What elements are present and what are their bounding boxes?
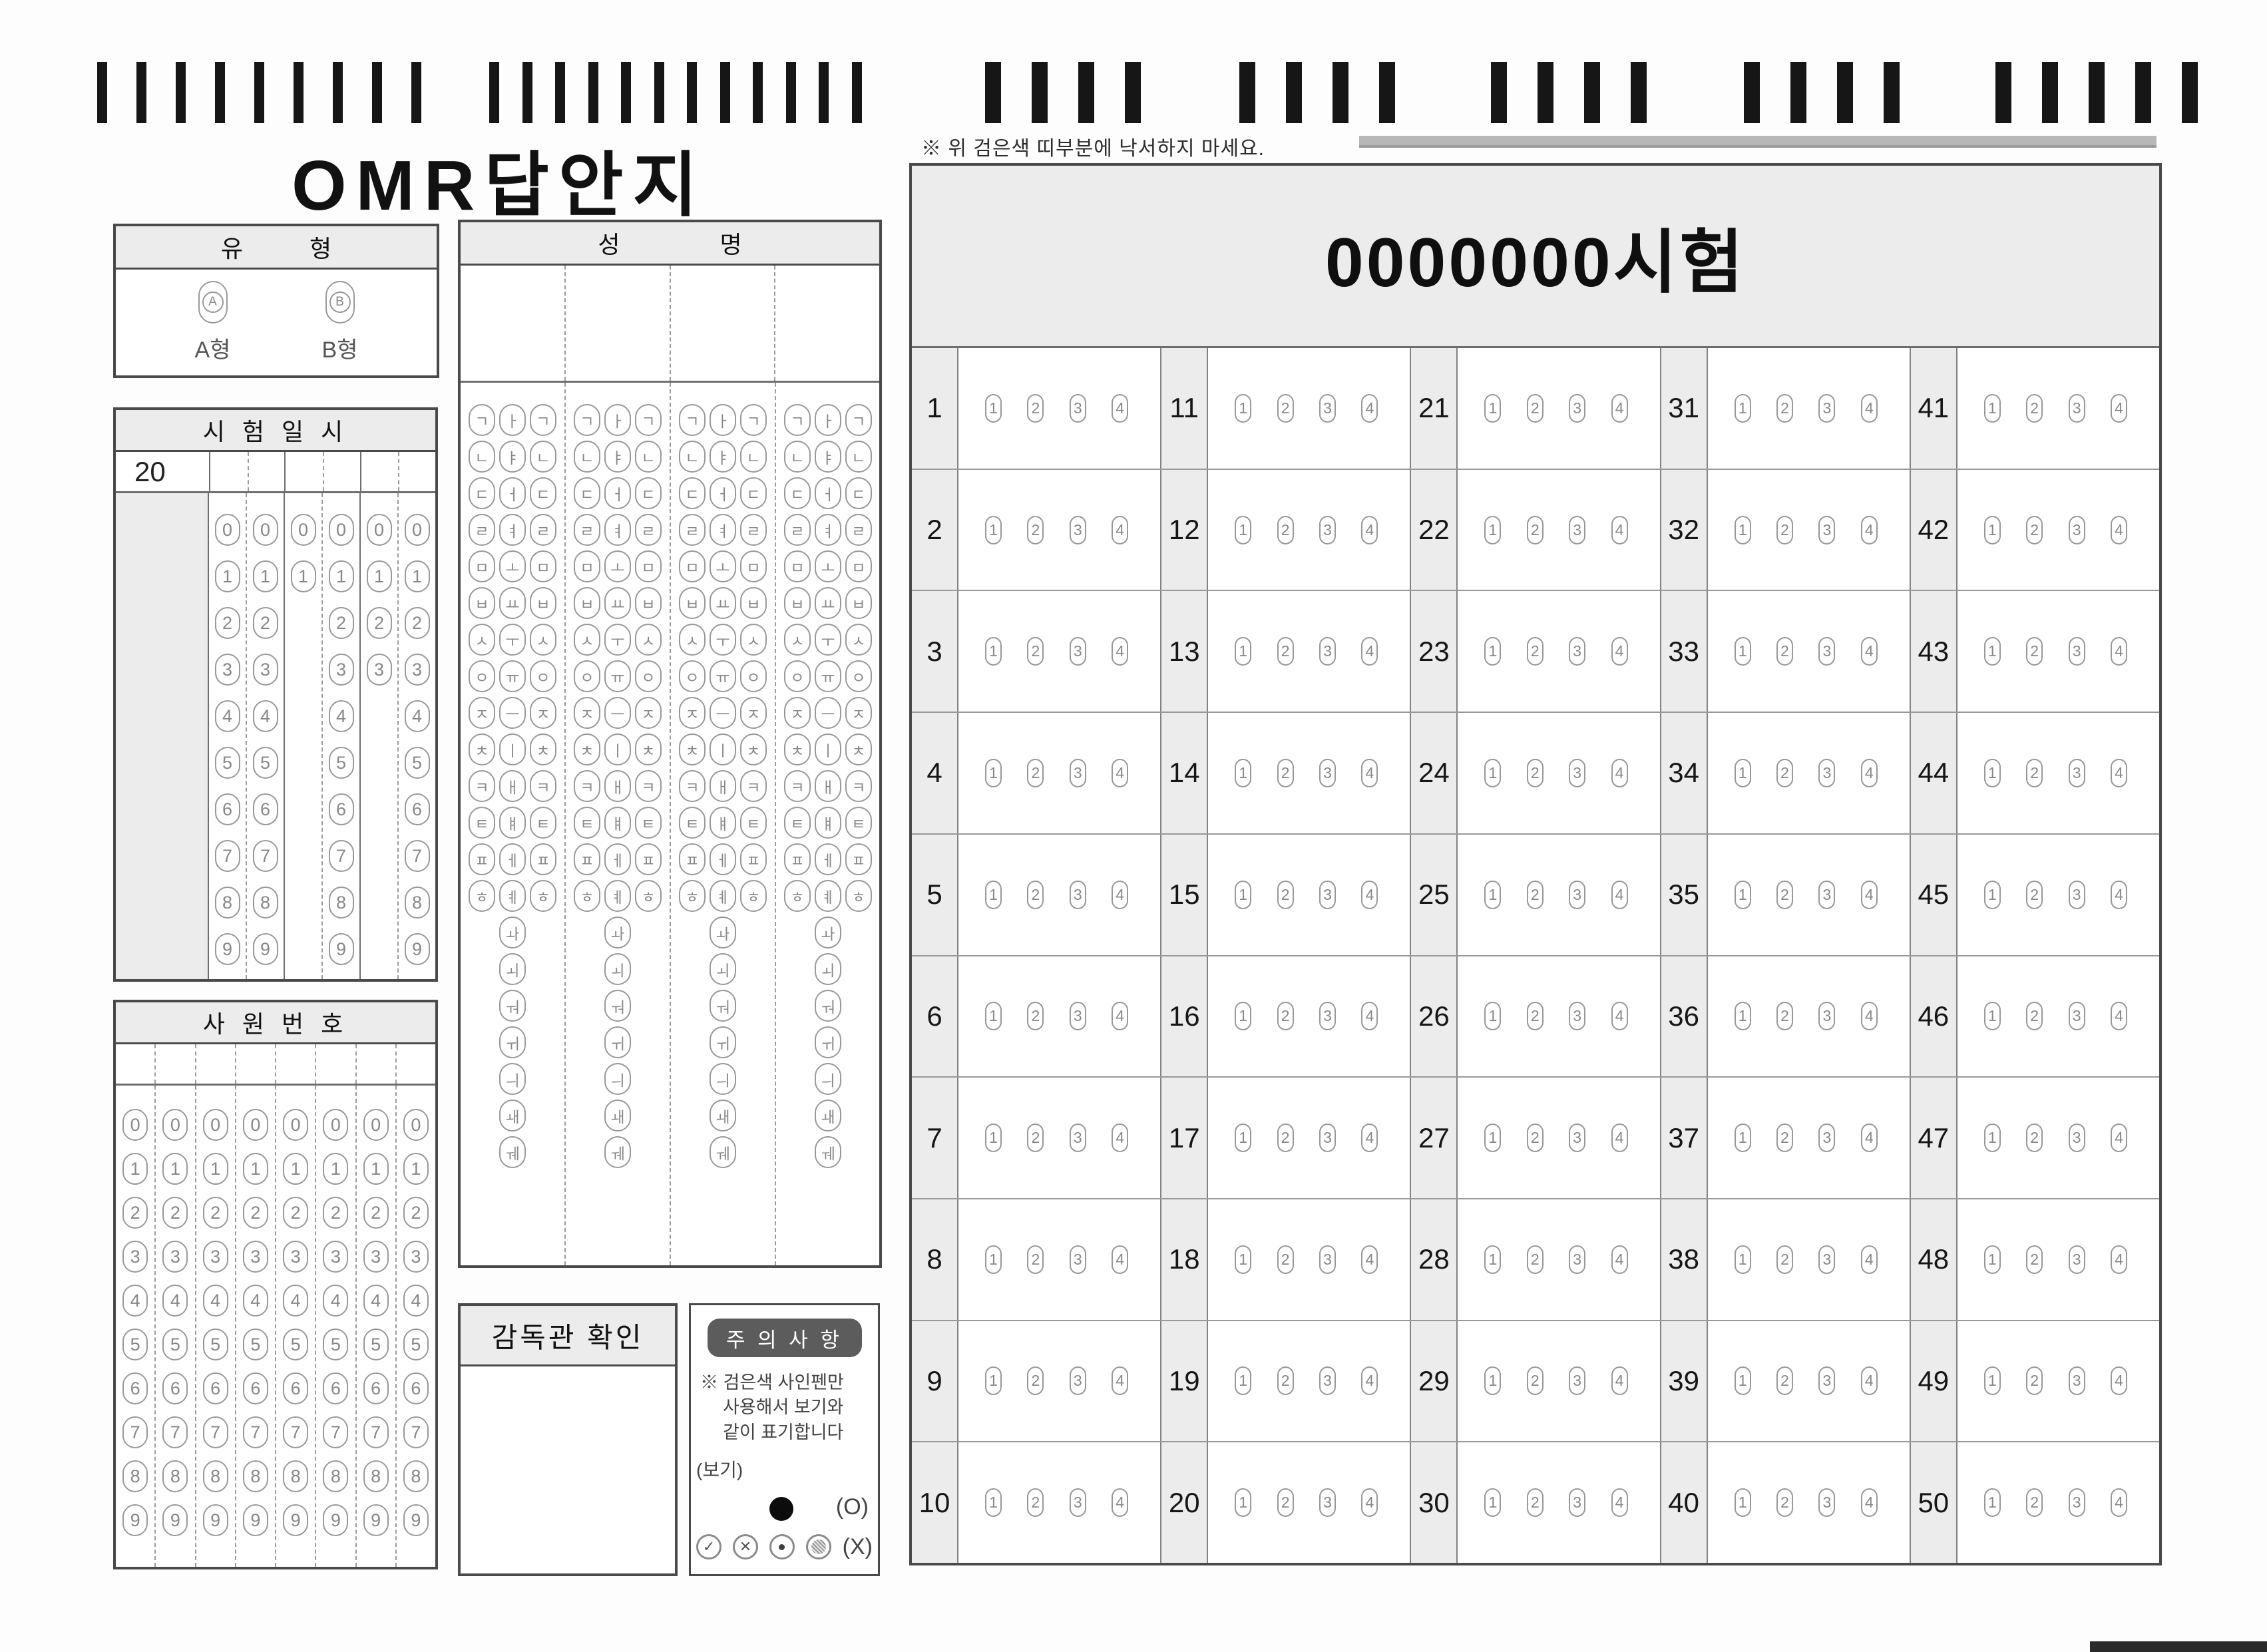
q36-choice-1[interactable]: 1	[1735, 1002, 1751, 1030]
jamo-bubble-middle-ㅚ[interactable]: ㅚ	[815, 953, 841, 985]
q21-choice-4[interactable]: 4	[1611, 394, 1628, 423]
jamo-bubble-middle-ㅘ[interactable]: ㅘ	[604, 917, 631, 948]
jamo-bubble-middle-ㅒ[interactable]: ㅒ	[710, 807, 736, 839]
jamo-bubble-last-ㅅ[interactable]: ㅅ	[635, 624, 662, 656]
q35-choice-2[interactable]: 2	[1776, 881, 1793, 909]
digit-bubble-emp-3-9[interactable]: 9	[203, 1504, 228, 1536]
jamo-bubble-first-ㅈ[interactable]: ㅈ	[679, 697, 706, 729]
q12-choice-4[interactable]: 4	[1361, 516, 1378, 544]
q3-choice-3[interactable]: 3	[1070, 637, 1086, 666]
jamo-bubble-last-ㅁ[interactable]: ㅁ	[740, 550, 767, 582]
digit-bubble-year-ones-3[interactable]: 3	[253, 654, 278, 686]
jamo-bubble-last-ㅁ[interactable]: ㅁ	[845, 550, 872, 582]
jamo-bubble-first-ㅊ[interactable]: ㅊ	[784, 733, 811, 765]
jamo-bubble-first-ㅁ[interactable]: ㅁ	[784, 550, 811, 582]
jamo-bubble-first-ㄴ[interactable]: ㄴ	[469, 441, 495, 473]
q2-choice-2[interactable]: 2	[1027, 516, 1044, 544]
q18-choice-2[interactable]: 2	[1277, 1245, 1294, 1274]
jamo-bubble-middle-ㅑ[interactable]: ㅑ	[604, 441, 631, 473]
q44-choice-3[interactable]: 3	[2069, 759, 2085, 787]
digit-bubble-day-tens-3[interactable]: 3	[367, 654, 392, 686]
jamo-bubble-first-ㅇ[interactable]: ㅇ	[574, 660, 600, 692]
jamo-bubble-middle-ㅡ[interactable]: ㅡ	[604, 697, 631, 729]
digit-bubble-day-ones-2[interactable]: 2	[405, 607, 430, 639]
digit-bubble-emp-8-7[interactable]: 7	[403, 1416, 429, 1448]
jamo-bubble-last-ㅎ[interactable]: ㅎ	[635, 880, 662, 912]
q22-choice-1[interactable]: 1	[1484, 516, 1501, 544]
q31-choice-3[interactable]: 3	[1818, 394, 1835, 423]
q29-choice-4[interactable]: 4	[1611, 1366, 1628, 1395]
jamo-bubble-last-ㅊ[interactable]: ㅊ	[530, 733, 556, 765]
jamo-bubble-last-ㅂ[interactable]: ㅂ	[635, 587, 662, 619]
digit-bubble-month-ones-3[interactable]: 3	[329, 654, 354, 686]
q48-choice-3[interactable]: 3	[2069, 1245, 2085, 1274]
jamo-bubble-first-ㅂ[interactable]: ㅂ	[469, 587, 495, 619]
jamo-bubble-last-ㅅ[interactable]: ㅅ	[740, 624, 767, 656]
jamo-bubble-middle-ㅞ[interactable]: ㅞ	[604, 1136, 631, 1168]
jamo-bubble-last-ㅊ[interactable]: ㅊ	[740, 733, 767, 765]
q19-choice-3[interactable]: 3	[1319, 1366, 1336, 1395]
q11-choice-2[interactable]: 2	[1277, 394, 1294, 423]
q49-choice-1[interactable]: 1	[1984, 1366, 2001, 1395]
digit-bubble-emp-8-1[interactable]: 1	[403, 1153, 429, 1185]
jamo-bubble-middle-ㅚ[interactable]: ㅚ	[499, 953, 526, 985]
q5-choice-2[interactable]: 2	[1027, 881, 1044, 909]
jamo-bubble-middle-ㅗ[interactable]: ㅗ	[710, 550, 736, 582]
jamo-bubble-middle-ㅡ[interactable]: ㅡ	[815, 697, 841, 729]
q5-choice-1[interactable]: 1	[985, 881, 1002, 909]
q38-choice-4[interactable]: 4	[1861, 1245, 1878, 1274]
q50-choice-2[interactable]: 2	[2026, 1488, 2043, 1517]
jamo-bubble-middle-ㅒ[interactable]: ㅒ	[499, 807, 526, 839]
digit-bubble-emp-5-8[interactable]: 8	[283, 1460, 308, 1492]
digit-bubble-year-tens-9[interactable]: 9	[215, 933, 240, 965]
q42-choice-2[interactable]: 2	[2026, 516, 2043, 544]
q9-choice-3[interactable]: 3	[1070, 1366, 1086, 1395]
digit-bubble-year-tens-3[interactable]: 3	[215, 654, 240, 686]
q20-choice-4[interactable]: 4	[1361, 1488, 1378, 1517]
digit-bubble-year-ones-8[interactable]: 8	[253, 887, 278, 919]
q10-choice-4[interactable]: 4	[1112, 1488, 1128, 1517]
digit-bubble-emp-2-1[interactable]: 1	[162, 1153, 188, 1185]
jamo-bubble-first-ㅎ[interactable]: ㅎ	[469, 880, 495, 912]
jamo-bubble-middle-ㅠ[interactable]: ㅠ	[815, 660, 841, 692]
q38-choice-2[interactable]: 2	[1776, 1245, 1793, 1274]
jamo-bubble-middle-ㅠ[interactable]: ㅠ	[499, 660, 526, 692]
q4-choice-2[interactable]: 2	[1027, 759, 1044, 787]
q18-choice-1[interactable]: 1	[1235, 1245, 1251, 1274]
q1-choice-3[interactable]: 3	[1070, 394, 1086, 423]
jamo-bubble-middle-ㅟ[interactable]: ㅟ	[815, 1026, 841, 1058]
jamo-bubble-first-ㅋ[interactable]: ㅋ	[574, 770, 600, 802]
q8-choice-4[interactable]: 4	[1112, 1245, 1128, 1274]
digit-bubble-emp-7-4[interactable]: 4	[363, 1285, 389, 1317]
jamo-bubble-last-ㅋ[interactable]: ㅋ	[845, 770, 872, 802]
digit-bubble-year-tens-0[interactable]: 0	[215, 514, 240, 546]
jamo-bubble-middle-ㅐ[interactable]: ㅐ	[815, 770, 841, 802]
digit-bubble-year-ones-4[interactable]: 4	[253, 700, 278, 732]
digit-bubble-emp-2-4[interactable]: 4	[162, 1285, 188, 1317]
digit-bubble-emp-1-3[interactable]: 3	[122, 1241, 148, 1273]
q24-choice-2[interactable]: 2	[1527, 759, 1544, 787]
jamo-bubble-middle-ㅏ[interactable]: ㅏ	[499, 404, 526, 436]
jamo-bubble-middle-ㅗ[interactable]: ㅗ	[604, 550, 631, 582]
q22-choice-2[interactable]: 2	[1527, 516, 1544, 544]
digit-bubble-emp-3-8[interactable]: 8	[203, 1460, 228, 1492]
q6-choice-4[interactable]: 4	[1112, 1002, 1128, 1030]
employee-no-write-cell[interactable]	[275, 1044, 315, 1084]
q34-choice-4[interactable]: 4	[1861, 759, 1878, 787]
digit-bubble-emp-4-4[interactable]: 4	[243, 1285, 268, 1317]
digit-bubble-emp-3-4[interactable]: 4	[203, 1285, 228, 1317]
employee-no-write-cell[interactable]	[195, 1044, 235, 1084]
q30-choice-2[interactable]: 2	[1527, 1488, 1544, 1517]
digit-bubble-emp-1-7[interactable]: 7	[122, 1416, 148, 1448]
jamo-bubble-middle-ㅒ[interactable]: ㅒ	[815, 807, 841, 839]
q8-choice-1[interactable]: 1	[985, 1245, 1002, 1274]
digit-bubble-emp-1-4[interactable]: 4	[122, 1285, 148, 1317]
jamo-bubble-middle-ㅕ[interactable]: ㅕ	[815, 514, 841, 546]
q30-choice-4[interactable]: 4	[1611, 1488, 1628, 1517]
digit-bubble-emp-2-9[interactable]: 9	[162, 1504, 188, 1536]
digit-bubble-day-tens-2[interactable]: 2	[367, 607, 392, 639]
q4-choice-1[interactable]: 1	[985, 759, 1002, 787]
q45-choice-4[interactable]: 4	[2111, 881, 2127, 909]
digit-bubble-emp-8-0[interactable]: 0	[403, 1109, 429, 1141]
jamo-bubble-middle-ㅞ[interactable]: ㅞ	[710, 1136, 736, 1168]
jamo-bubble-first-ㄱ[interactable]: ㄱ	[679, 404, 706, 436]
digit-bubble-year-ones-2[interactable]: 2	[253, 607, 278, 639]
q35-choice-1[interactable]: 1	[1735, 881, 1751, 909]
digit-bubble-emp-7-1[interactable]: 1	[363, 1153, 389, 1185]
jamo-bubble-last-ㅈ[interactable]: ㅈ	[845, 697, 872, 729]
q26-choice-2[interactable]: 2	[1527, 1002, 1544, 1030]
q25-choice-2[interactable]: 2	[1527, 881, 1544, 909]
digit-bubble-emp-1-6[interactable]: 6	[122, 1372, 148, 1404]
jamo-bubble-middle-ㅛ[interactable]: ㅛ	[815, 587, 841, 619]
q18-choice-4[interactable]: 4	[1361, 1245, 1378, 1274]
q13-choice-1[interactable]: 1	[1235, 637, 1251, 666]
digit-bubble-emp-2-7[interactable]: 7	[162, 1416, 188, 1448]
digit-bubble-emp-1-2[interactable]: 2	[122, 1197, 148, 1229]
jamo-bubble-first-ㅁ[interactable]: ㅁ	[679, 550, 706, 582]
jamo-bubble-first-ㅎ[interactable]: ㅎ	[574, 880, 600, 912]
q50-choice-4[interactable]: 4	[2111, 1488, 2127, 1517]
jamo-bubble-last-ㄷ[interactable]: ㄷ	[635, 477, 662, 509]
jamo-bubble-middle-ㅖ[interactable]: ㅖ	[815, 880, 841, 912]
q41-choice-2[interactable]: 2	[2026, 394, 2043, 423]
digit-bubble-month-ones-0[interactable]: 0	[329, 514, 354, 546]
digit-bubble-emp-1-5[interactable]: 5	[122, 1329, 148, 1360]
digit-bubble-emp-8-4[interactable]: 4	[403, 1285, 429, 1317]
jamo-bubble-last-ㄱ[interactable]: ㄱ	[530, 404, 556, 436]
jamo-bubble-last-ㄴ[interactable]: ㄴ	[740, 441, 767, 473]
digit-bubble-emp-5-1[interactable]: 1	[283, 1153, 308, 1185]
employee-no-write-cell[interactable]	[355, 1044, 395, 1084]
digit-bubble-emp-6-0[interactable]: 0	[323, 1109, 348, 1141]
jamo-bubble-last-ㅁ[interactable]: ㅁ	[635, 550, 662, 582]
jamo-bubble-middle-ㅠ[interactable]: ㅠ	[604, 660, 631, 692]
digit-bubble-emp-5-3[interactable]: 3	[283, 1241, 308, 1273]
q11-choice-1[interactable]: 1	[1235, 394, 1251, 423]
digit-bubble-emp-3-2[interactable]: 2	[203, 1197, 228, 1229]
digit-bubble-emp-7-3[interactable]: 3	[363, 1241, 389, 1273]
jamo-bubble-first-ㄹ[interactable]: ㄹ	[469, 514, 495, 546]
jamo-bubble-middle-ㅏ[interactable]: ㅏ	[815, 404, 841, 436]
digit-bubble-emp-2-8[interactable]: 8	[162, 1460, 188, 1492]
q2-choice-1[interactable]: 1	[985, 516, 1002, 544]
digit-bubble-emp-1-9[interactable]: 9	[122, 1504, 148, 1536]
digit-bubble-emp-3-7[interactable]: 7	[203, 1416, 228, 1448]
q35-choice-4[interactable]: 4	[1861, 881, 1878, 909]
jamo-bubble-last-ㅁ[interactable]: ㅁ	[530, 550, 556, 582]
q15-choice-1[interactable]: 1	[1235, 881, 1251, 909]
jamo-bubble-last-ㅅ[interactable]: ㅅ	[845, 624, 872, 656]
digit-bubble-emp-7-9[interactable]: 9	[363, 1504, 389, 1536]
digit-bubble-emp-5-9[interactable]: 9	[283, 1504, 308, 1536]
q39-choice-1[interactable]: 1	[1735, 1366, 1751, 1395]
q49-choice-3[interactable]: 3	[2069, 1366, 2085, 1395]
q31-choice-1[interactable]: 1	[1735, 394, 1751, 423]
jamo-bubble-first-ㅊ[interactable]: ㅊ	[469, 733, 495, 765]
q12-choice-1[interactable]: 1	[1235, 516, 1251, 544]
q29-choice-2[interactable]: 2	[1527, 1366, 1544, 1395]
jamo-bubble-middle-ㅓ[interactable]: ㅓ	[815, 477, 841, 509]
jamo-bubble-last-ㄱ[interactable]: ㄱ	[845, 404, 872, 436]
q6-choice-3[interactable]: 3	[1070, 1002, 1086, 1030]
q10-choice-1[interactable]: 1	[985, 1488, 1002, 1517]
q17-choice-2[interactable]: 2	[1277, 1124, 1294, 1152]
jamo-bubble-first-ㅇ[interactable]: ㅇ	[469, 660, 495, 692]
digit-bubble-emp-6-8[interactable]: 8	[323, 1460, 348, 1492]
jamo-bubble-last-ㅌ[interactable]: ㅌ	[845, 807, 872, 839]
q28-choice-1[interactable]: 1	[1484, 1245, 1501, 1274]
digit-bubble-emp-4-6[interactable]: 6	[243, 1372, 268, 1404]
jamo-bubble-last-ㅇ[interactable]: ㅇ	[845, 660, 872, 692]
jamo-bubble-middle-ㅟ[interactable]: ㅟ	[604, 1026, 631, 1058]
jamo-bubble-middle-ㅚ[interactable]: ㅚ	[710, 953, 736, 985]
q38-choice-3[interactable]: 3	[1818, 1245, 1835, 1274]
q9-choice-1[interactable]: 1	[985, 1366, 1002, 1395]
jamo-bubble-middle-ㅙ[interactable]: ㅙ	[499, 1100, 526, 1132]
jamo-bubble-last-ㅈ[interactable]: ㅈ	[740, 697, 767, 729]
jamo-bubble-middle-ㅜ[interactable]: ㅜ	[815, 624, 841, 656]
q45-choice-2[interactable]: 2	[2026, 881, 2043, 909]
digit-bubble-emp-7-0[interactable]: 0	[363, 1109, 389, 1141]
q41-choice-4[interactable]: 4	[2111, 394, 2127, 423]
jamo-bubble-middle-ㅗ[interactable]: ㅗ	[499, 550, 526, 582]
jamo-bubble-middle-ㅠ[interactable]: ㅠ	[710, 660, 736, 692]
q13-choice-2[interactable]: 2	[1277, 637, 1294, 666]
q40-choice-2[interactable]: 2	[1776, 1488, 1793, 1517]
jamo-bubble-middle-ㅖ[interactable]: ㅖ	[604, 880, 631, 912]
jamo-bubble-first-ㅍ[interactable]: ㅍ	[469, 843, 495, 875]
q12-choice-3[interactable]: 3	[1319, 516, 1336, 544]
q8-choice-3[interactable]: 3	[1070, 1245, 1086, 1274]
q17-choice-3[interactable]: 3	[1319, 1124, 1336, 1152]
jamo-bubble-last-ㅍ[interactable]: ㅍ	[845, 843, 872, 875]
q21-choice-3[interactable]: 3	[1569, 394, 1585, 423]
jamo-bubble-middle-ㅐ[interactable]: ㅐ	[499, 770, 526, 802]
supervisor-sign-area[interactable]	[461, 1366, 675, 1573]
q13-choice-3[interactable]: 3	[1319, 637, 1336, 666]
jamo-bubble-middle-ㅕ[interactable]: ㅕ	[710, 514, 736, 546]
jamo-bubble-middle-ㅕ[interactable]: ㅕ	[604, 514, 631, 546]
q16-choice-3[interactable]: 3	[1319, 1002, 1336, 1030]
jamo-bubble-first-ㅂ[interactable]: ㅂ	[679, 587, 706, 619]
jamo-bubble-middle-ㅣ[interactable]: ㅣ	[604, 733, 631, 765]
q7-choice-3[interactable]: 3	[1070, 1124, 1086, 1152]
q31-choice-2[interactable]: 2	[1776, 394, 1793, 423]
digit-bubble-year-ones-1[interactable]: 1	[253, 560, 278, 592]
digit-bubble-month-ones-9[interactable]: 9	[329, 933, 354, 965]
digit-bubble-year-tens-6[interactable]: 6	[215, 793, 240, 825]
jamo-bubble-first-ㅁ[interactable]: ㅁ	[574, 550, 600, 582]
q23-choice-2[interactable]: 2	[1527, 637, 1544, 666]
jamo-bubble-middle-ㅏ[interactable]: ㅏ	[604, 404, 631, 436]
digit-bubble-emp-2-5[interactable]: 5	[162, 1329, 188, 1360]
jamo-bubble-middle-ㅣ[interactable]: ㅣ	[815, 733, 841, 765]
q19-choice-2[interactable]: 2	[1277, 1366, 1294, 1395]
q27-choice-1[interactable]: 1	[1484, 1124, 1501, 1152]
jamo-bubble-middle-ㅓ[interactable]: ㅓ	[499, 477, 526, 509]
q14-choice-2[interactable]: 2	[1277, 759, 1294, 787]
q43-choice-1[interactable]: 1	[1984, 637, 2001, 666]
q32-choice-3[interactable]: 3	[1818, 516, 1835, 544]
q47-choice-1[interactable]: 1	[1984, 1124, 2001, 1152]
digit-bubble-emp-1-8[interactable]: 8	[122, 1460, 148, 1492]
jamo-bubble-first-ㅊ[interactable]: ㅊ	[574, 733, 600, 765]
jamo-bubble-last-ㄴ[interactable]: ㄴ	[635, 441, 662, 473]
jamo-bubble-first-ㅈ[interactable]: ㅈ	[574, 697, 600, 729]
digit-bubble-emp-6-4[interactable]: 4	[323, 1285, 348, 1317]
digit-bubble-emp-6-1[interactable]: 1	[323, 1153, 348, 1185]
q47-choice-3[interactable]: 3	[2069, 1124, 2085, 1152]
digit-bubble-emp-5-0[interactable]: 0	[283, 1109, 308, 1141]
jamo-bubble-first-ㄹ[interactable]: ㄹ	[784, 514, 811, 546]
q36-choice-4[interactable]: 4	[1861, 1002, 1878, 1030]
jamo-bubble-middle-ㅜ[interactable]: ㅜ	[710, 624, 736, 656]
jamo-bubble-first-ㅈ[interactable]: ㅈ	[784, 697, 811, 729]
jamo-bubble-first-ㅍ[interactable]: ㅍ	[784, 843, 811, 875]
q3-choice-1[interactable]: 1	[985, 637, 1002, 666]
jamo-bubble-last-ㅎ[interactable]: ㅎ	[845, 880, 872, 912]
jamo-bubble-last-ㄹ[interactable]: ㄹ	[845, 514, 872, 546]
jamo-bubble-middle-ㅝ[interactable]: ㅝ	[815, 990, 841, 1022]
q3-choice-2[interactable]: 2	[1027, 637, 1044, 666]
q40-choice-3[interactable]: 3	[1818, 1488, 1835, 1517]
digit-bubble-emp-8-2[interactable]: 2	[403, 1197, 429, 1229]
q16-choice-2[interactable]: 2	[1277, 1002, 1294, 1030]
q15-choice-4[interactable]: 4	[1361, 881, 1378, 909]
jamo-bubble-last-ㄷ[interactable]: ㄷ	[530, 477, 556, 509]
jamo-bubble-first-ㅋ[interactable]: ㅋ	[784, 770, 811, 802]
q13-choice-4[interactable]: 4	[1361, 637, 1378, 666]
type-bubble-a[interactable]: A	[198, 281, 228, 323]
jamo-bubble-first-ㅅ[interactable]: ㅅ	[469, 624, 495, 656]
digit-bubble-emp-7-5[interactable]: 5	[363, 1329, 389, 1360]
q38-choice-1[interactable]: 1	[1735, 1245, 1751, 1274]
q11-choice-3[interactable]: 3	[1319, 394, 1336, 423]
q31-choice-4[interactable]: 4	[1861, 394, 1878, 423]
jamo-bubble-last-ㅂ[interactable]: ㅂ	[530, 587, 556, 619]
digit-bubble-month-ones-7[interactable]: 7	[329, 840, 354, 872]
digit-bubble-emp-5-5[interactable]: 5	[283, 1329, 308, 1360]
jamo-bubble-first-ㄱ[interactable]: ㄱ	[469, 404, 495, 436]
jamo-bubble-last-ㅎ[interactable]: ㅎ	[530, 880, 556, 912]
jamo-bubble-middle-ㅓ[interactable]: ㅓ	[604, 477, 631, 509]
q5-choice-4[interactable]: 4	[1112, 881, 1128, 909]
jamo-bubble-middle-ㅑ[interactable]: ㅑ	[815, 441, 841, 473]
jamo-bubble-first-ㅌ[interactable]: ㅌ	[679, 807, 706, 839]
jamo-bubble-middle-ㅐ[interactable]: ㅐ	[604, 770, 631, 802]
jamo-bubble-first-ㅌ[interactable]: ㅌ	[469, 807, 495, 839]
q6-choice-1[interactable]: 1	[985, 1002, 1002, 1030]
jamo-bubble-first-ㄹ[interactable]: ㄹ	[574, 514, 600, 546]
q4-choice-4[interactable]: 4	[1112, 759, 1128, 787]
q7-choice-1[interactable]: 1	[985, 1124, 1002, 1152]
jamo-bubble-middle-ㅝ[interactable]: ㅝ	[710, 990, 736, 1022]
exam-write-cell-day[interactable]	[360, 452, 435, 491]
digit-bubble-emp-8-9[interactable]: 9	[403, 1504, 429, 1536]
exam-write-cell-month[interactable]	[284, 452, 359, 491]
q24-choice-1[interactable]: 1	[1484, 759, 1501, 787]
digit-bubble-emp-5-7[interactable]: 7	[283, 1416, 308, 1448]
q23-choice-1[interactable]: 1	[1484, 637, 1501, 666]
jamo-bubble-middle-ㅑ[interactable]: ㅑ	[710, 441, 736, 473]
digit-bubble-month-tens-0[interactable]: 0	[291, 514, 316, 546]
q24-choice-3[interactable]: 3	[1569, 759, 1585, 787]
digit-bubble-emp-4-2[interactable]: 2	[243, 1197, 268, 1229]
jamo-bubble-first-ㅌ[interactable]: ㅌ	[784, 807, 811, 839]
q33-choice-4[interactable]: 4	[1861, 637, 1878, 666]
jamo-bubble-middle-ㅒ[interactable]: ㅒ	[604, 807, 631, 839]
digit-bubble-year-tens-1[interactable]: 1	[215, 560, 240, 592]
q21-choice-2[interactable]: 2	[1527, 394, 1544, 423]
q49-choice-4[interactable]: 4	[2111, 1366, 2127, 1395]
q42-choice-4[interactable]: 4	[2111, 516, 2127, 544]
q2-choice-4[interactable]: 4	[1112, 516, 1128, 544]
jamo-bubble-first-ㄴ[interactable]: ㄴ	[784, 441, 811, 473]
digit-bubble-emp-6-2[interactable]: 2	[323, 1197, 348, 1229]
jamo-bubble-last-ㅂ[interactable]: ㅂ	[845, 587, 872, 619]
q14-choice-4[interactable]: 4	[1361, 759, 1378, 787]
q43-choice-2[interactable]: 2	[2026, 637, 2043, 666]
digit-bubble-emp-6-9[interactable]: 9	[323, 1504, 348, 1536]
q47-choice-2[interactable]: 2	[2026, 1124, 2043, 1152]
jamo-bubble-middle-ㅢ[interactable]: ㅢ	[710, 1063, 736, 1095]
digit-bubble-emp-3-0[interactable]: 0	[203, 1109, 228, 1141]
q27-choice-3[interactable]: 3	[1569, 1124, 1585, 1152]
q26-choice-3[interactable]: 3	[1569, 1002, 1585, 1030]
jamo-bubble-middle-ㅘ[interactable]: ㅘ	[710, 917, 736, 948]
digit-bubble-emp-8-6[interactable]: 6	[403, 1372, 429, 1404]
jamo-bubble-last-ㄴ[interactable]: ㄴ	[530, 441, 556, 473]
q27-choice-2[interactable]: 2	[1527, 1124, 1544, 1152]
employee-no-write-cell[interactable]	[235, 1044, 275, 1084]
q49-choice-2[interactable]: 2	[2026, 1366, 2043, 1395]
digit-bubble-emp-4-7[interactable]: 7	[243, 1416, 268, 1448]
digit-bubble-emp-5-2[interactable]: 2	[283, 1197, 308, 1229]
q25-choice-3[interactable]: 3	[1569, 881, 1585, 909]
jamo-bubble-first-ㅊ[interactable]: ㅊ	[679, 733, 706, 765]
jamo-bubble-last-ㅅ[interactable]: ㅅ	[530, 624, 556, 656]
digit-bubble-emp-6-3[interactable]: 3	[323, 1241, 348, 1273]
jamo-bubble-first-ㅎ[interactable]: ㅎ	[784, 880, 811, 912]
q35-choice-3[interactable]: 3	[1818, 881, 1835, 909]
digit-bubble-emp-7-8[interactable]: 8	[363, 1460, 389, 1492]
jamo-bubble-middle-ㅝ[interactable]: ㅝ	[499, 990, 526, 1022]
